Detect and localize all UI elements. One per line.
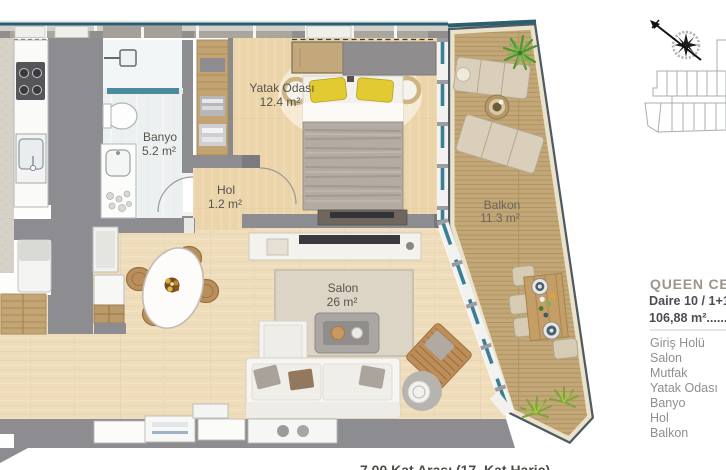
svg-text:Balkon: Balkon — [650, 426, 688, 440]
svg-text:Salon: Salon — [650, 351, 682, 365]
svg-text:106,88 m²......10: 106,88 m²......10 — [649, 311, 726, 325]
svg-text:26 m²: 26 m² — [327, 295, 358, 309]
svg-text:1.2 m²: 1.2 m² — [208, 197, 242, 211]
svg-text:11.3 m²: 11.3 m² — [480, 211, 520, 225]
svg-text:12.4 m²: 12.4 m² — [260, 95, 301, 109]
svg-text:Yatak Odası: Yatak Odası — [650, 381, 718, 395]
svg-text:QUEEN CENTRAL: QUEEN CENTRAL — [650, 276, 726, 292]
svg-text:5.2 m²: 5.2 m² — [142, 144, 176, 158]
svg-text:Hol: Hol — [650, 411, 669, 425]
svg-text:Banyo: Banyo — [143, 130, 177, 144]
svg-text:Daire 10 / 1+1 D: Daire 10 / 1+1 D — [649, 294, 726, 308]
svg-text:Balkon: Balkon — [484, 198, 521, 212]
svg-text:Hol: Hol — [217, 183, 235, 197]
svg-text:Mutfak: Mutfak — [650, 366, 688, 380]
svg-text:Salon: Salon — [328, 281, 359, 295]
svg-text:7,00 Kat Arası (17. Kat Hariç): 7,00 Kat Arası (17. Kat Hariç) — [360, 462, 550, 470]
svg-text:Yatak Odası: Yatak Odası — [249, 81, 314, 95]
svg-text:Banyo: Banyo — [650, 396, 685, 410]
svg-text:Giriş Holü: Giriş Holü — [650, 336, 705, 350]
